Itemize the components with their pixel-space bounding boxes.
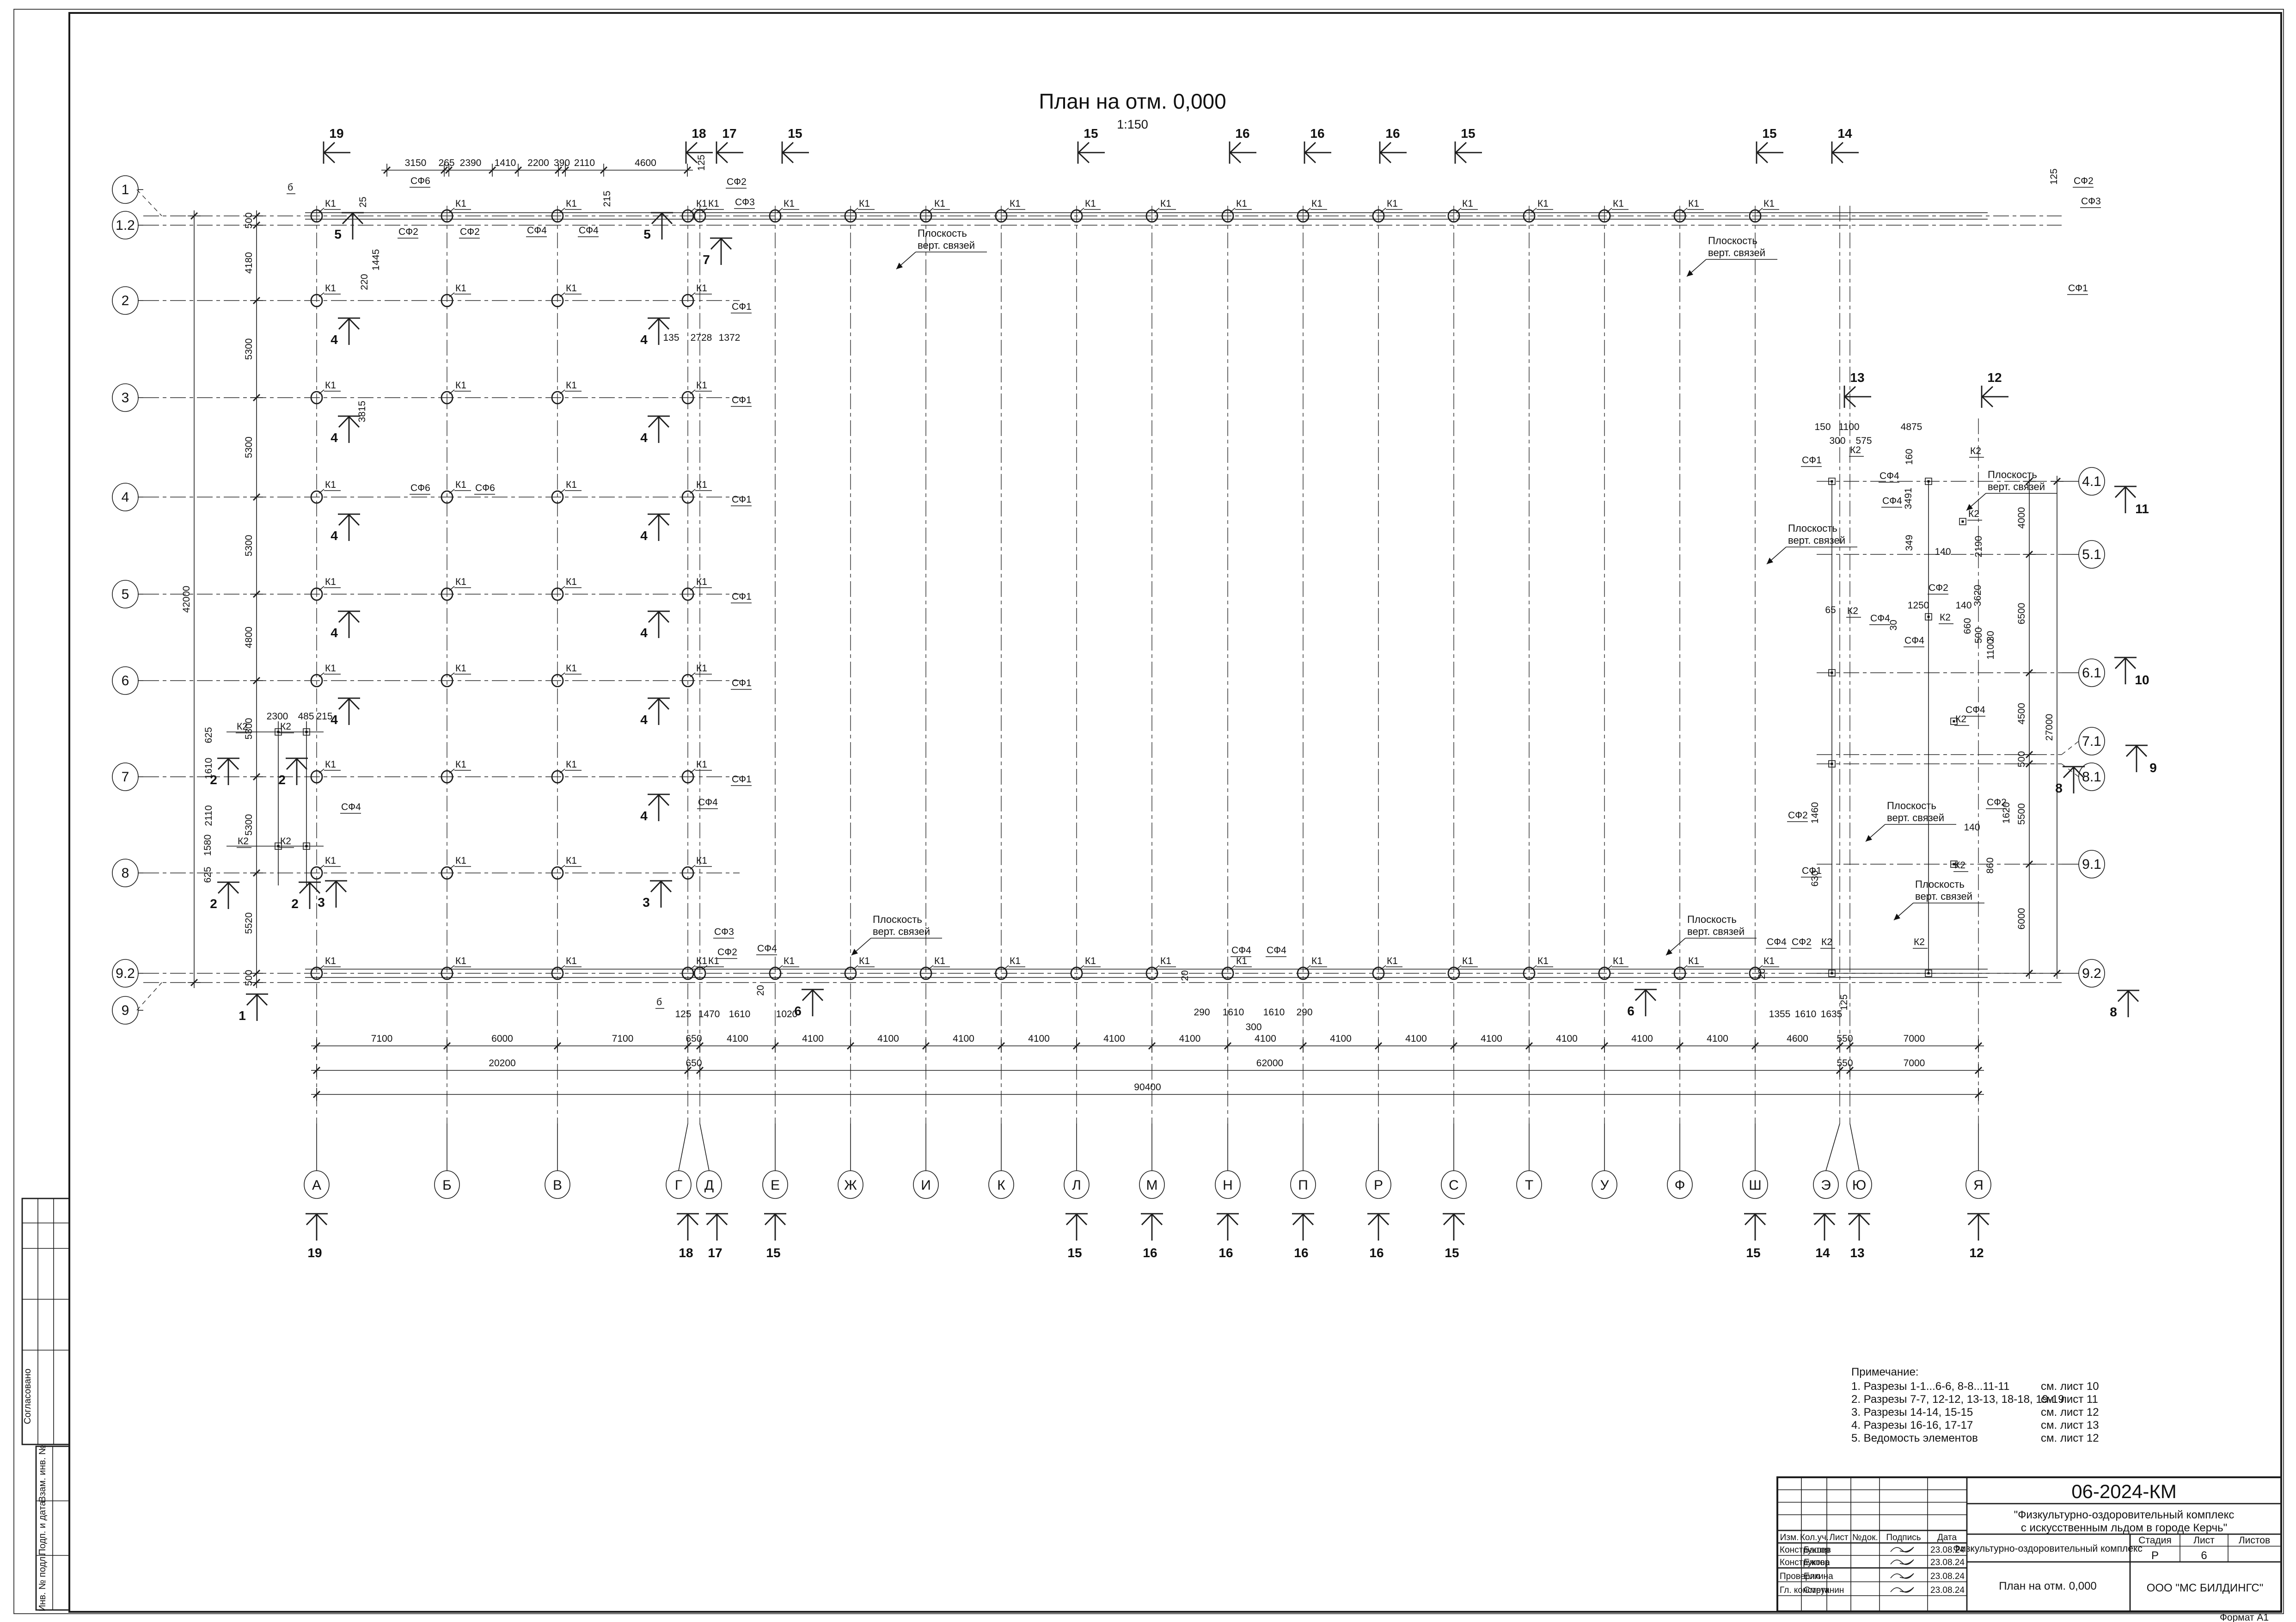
drawing-title-cell: План на отм. 0,000 — [1999, 1580, 2097, 1592]
title-block-signature-rows — [1891, 1547, 1914, 1592]
section-arrow — [1368, 1214, 1378, 1225]
local-dim: 30 — [1985, 631, 1996, 641]
section-arrow — [1066, 1214, 1077, 1225]
dim-value: 5300 — [244, 436, 254, 458]
column-mark-k2-core — [277, 845, 280, 848]
sheet-number: 6 — [2201, 1549, 2207, 1562]
note-item: 4. Разрезы 16-16, 17-17 — [1851, 1419, 1973, 1432]
section-arrow — [1077, 1214, 1087, 1225]
section-number: 16 — [1218, 1246, 1233, 1260]
dim-value: 5520 — [244, 912, 254, 934]
dim-value: 4100 — [727, 1033, 748, 1044]
plane-note: Плоскость — [918, 227, 967, 239]
section-arrow — [711, 239, 721, 249]
local-dim: 20 — [1180, 970, 1190, 981]
dim-value: 4100 — [1103, 1033, 1125, 1044]
plane-note: верт. связей — [1687, 926, 1745, 937]
axis-label: Н — [1223, 1178, 1233, 1193]
column-label-k1: К1 — [1311, 198, 1322, 209]
column-label-k1: К1 — [566, 283, 577, 294]
section-arrow — [1078, 142, 1089, 153]
local-dim: 1620 — [2001, 802, 2012, 824]
section-number: 4 — [640, 713, 648, 727]
column-label-k1: К1 — [1613, 198, 1624, 209]
section-number: 11 — [2135, 502, 2149, 516]
local-dim: 1250 — [1908, 600, 1929, 611]
axis-label: 1.2 — [116, 218, 135, 233]
axis-leader — [137, 190, 162, 216]
section-number: 3 — [318, 895, 325, 909]
section-arrow — [1982, 397, 1993, 407]
column-label-k1: К1 — [325, 663, 336, 674]
doc-number: 06-2024-КМ — [2071, 1481, 2177, 1502]
local-dim: 2190 — [1973, 536, 1984, 558]
axis-label: 9.1 — [2082, 857, 2101, 872]
plane-note: верт. связей — [1887, 812, 1944, 823]
section-arrow — [306, 1214, 317, 1225]
section-number: 12 — [1987, 370, 2002, 385]
section-number: 18 — [679, 1246, 693, 1260]
list-header: Лист — [2193, 1535, 2215, 1546]
local-dim: 1445 — [371, 249, 381, 271]
stamp-podp-data: Подп. и дата — [37, 1500, 48, 1555]
section-arrow — [2063, 767, 2074, 778]
column-label-k1: К1 — [455, 663, 466, 674]
section-number: 8 — [2055, 781, 2063, 795]
section-number: 4 — [640, 528, 648, 543]
section-number: 19 — [329, 126, 343, 141]
section-number: 4 — [640, 430, 648, 445]
signature — [1891, 1560, 1914, 1565]
element-label: СФ4 — [1231, 945, 1251, 956]
local-dim: 140 — [1964, 822, 1980, 833]
element-label: СФ4 — [1904, 635, 1924, 646]
dim-value: 4500 — [2016, 703, 2027, 725]
section-arrow — [662, 213, 672, 224]
element-label: СФ4 — [1880, 471, 1899, 481]
dim-value: 650 — [686, 1033, 702, 1044]
column-label-k1: К1 — [455, 855, 466, 866]
local-dim: 1460 — [1810, 802, 1820, 824]
element-label: СФ1 — [732, 395, 752, 405]
plan-drawing: АБВГДЕЖИКЛМНПРСТУФШЭЮЯ11.223456789.294.1… — [112, 126, 2157, 1595]
dim-value: 6000 — [491, 1033, 513, 1044]
section-number: 14 — [1837, 126, 1852, 141]
column-label-k1: К1 — [1462, 198, 1473, 209]
column-label-k1: К1 — [696, 283, 707, 294]
plane-note: верт. связей — [1708, 247, 1765, 258]
local-dim: 1580 — [202, 835, 213, 856]
column-mark-k2-core — [1928, 616, 1930, 618]
tb-date: 23.08.24 — [1930, 1585, 1965, 1595]
section-number: 9 — [2149, 761, 2157, 775]
plane-note: Плоскость — [1788, 522, 1837, 534]
section-number: 16 — [1369, 1246, 1384, 1260]
local-dim: 290 — [1194, 1007, 1210, 1018]
dim-value: 4000 — [2016, 507, 2027, 529]
section-arrow — [1635, 990, 1646, 1001]
dim-value: 500 — [244, 212, 254, 228]
leader-arrowhead — [896, 263, 903, 269]
section-number: 18 — [692, 126, 706, 141]
section-arrow — [1230, 142, 1241, 153]
axis-label: 9.2 — [2082, 966, 2101, 981]
leader-arrowhead — [1666, 949, 1672, 955]
local-dim: 25 — [358, 197, 368, 207]
local-dim: 125 — [2049, 168, 2059, 184]
section-arrow — [218, 883, 228, 893]
column-label-k1: К1 — [696, 759, 707, 770]
stamp-vzam-inv: Взам. инв. № — [37, 1445, 48, 1502]
section-arrow — [2126, 746, 2137, 756]
local-dim: 160 — [1904, 449, 1915, 465]
section-arrow — [765, 1214, 775, 1225]
section-arrow — [2125, 487, 2136, 498]
column-label-k1: К1 — [455, 956, 466, 966]
local-dim: 125 — [675, 1009, 691, 1020]
axis-label: 5.1 — [2082, 547, 2101, 562]
section-number: 4 — [640, 626, 648, 640]
element-label: СФ3 — [714, 927, 734, 937]
note-item: 3. Разрезы 14-14, 15-15 — [1851, 1406, 1973, 1419]
dim-value: 1410 — [495, 158, 516, 168]
column-label-k1: К1 — [696, 577, 707, 587]
section-number: 6 — [1627, 1004, 1635, 1018]
local-dim: 1470 — [698, 1009, 720, 1020]
element-label: СФ3 — [2081, 196, 2101, 207]
element-label: СФ4 — [341, 802, 361, 812]
axis-label: Т — [1525, 1178, 1533, 1193]
axis-label: 1 — [122, 182, 129, 197]
element-label: СФ2 — [2074, 176, 2094, 186]
column-label-k1: К1 — [1085, 198, 1096, 209]
axis-label: П — [1298, 1178, 1308, 1193]
element-label: К2 — [1821, 937, 1832, 947]
section-arrow — [1152, 1214, 1162, 1225]
local-dim: 1355 — [1769, 1009, 1791, 1020]
local-dim: 1610 — [1795, 1009, 1817, 1020]
section-number: 15 — [1746, 1246, 1760, 1260]
section-arrow — [688, 1214, 698, 1225]
dim-value: 4100 — [953, 1033, 974, 1044]
column-label-k1: К1 — [859, 956, 870, 966]
section-arrow — [300, 883, 310, 893]
axis-leader — [137, 983, 162, 1010]
element-label: СФ1 — [732, 774, 752, 785]
local-dim: 4875 — [1901, 422, 1923, 432]
local-dim: 660 — [1962, 618, 1973, 634]
column-label-k1: К1 — [859, 198, 870, 209]
column-label-k1: К1 — [1613, 956, 1624, 966]
axis-label: 7.1 — [2082, 734, 2101, 749]
element-label: СФ2 — [460, 227, 480, 237]
axis-label: Ж — [844, 1178, 857, 1193]
section-arrow — [1755, 1214, 1765, 1225]
dim-value: 550 — [1837, 1058, 1853, 1069]
tb-date: 23.08.24 — [1930, 1558, 1965, 1567]
dim-value: 42000 — [181, 586, 192, 613]
column-label-k1: К1 — [696, 380, 707, 391]
axis-label: Ш — [1749, 1178, 1762, 1193]
column-mark-k2-core — [1831, 972, 1833, 975]
column-label-k1: К1 — [566, 759, 577, 770]
element-label: СФ3 — [735, 197, 755, 208]
drawing-sheet: План на отм. 0,000 1:150 АБВГДЕЖИКЛМНПРС… — [0, 0, 2296, 1622]
section-number: 4 — [331, 528, 338, 543]
section-arrow — [1757, 142, 1768, 153]
column-label-k1: К1 — [455, 380, 466, 391]
section-arrow — [775, 1214, 785, 1225]
element-label: СФ2 — [398, 227, 418, 237]
section-arrow — [678, 1214, 688, 1225]
section-arrow — [1303, 1214, 1313, 1225]
plane-note: верт. связей — [1788, 535, 1845, 546]
section-arrow — [228, 883, 239, 893]
local-dim: 65 — [1825, 605, 1836, 615]
title-block: 06-2024-КМ "Физкультурно-оздоровительный… — [1777, 1477, 2281, 1611]
dim-value: 4100 — [1631, 1033, 1653, 1044]
dim-value: 7100 — [612, 1033, 634, 1044]
section-arrow — [659, 515, 669, 525]
axis-label: Я — [1973, 1178, 1984, 1193]
column-label-k1: К1 — [1160, 198, 1171, 209]
local-dim: 1610 — [203, 758, 214, 780]
section-arrow — [1454, 1214, 1464, 1225]
section-number: 4 — [331, 332, 338, 347]
section-number: 7 — [703, 252, 710, 267]
local-dim: 1610 — [1223, 1007, 1244, 1018]
section-number: 16 — [1385, 126, 1400, 141]
section-arrow — [1380, 142, 1391, 153]
axis-label: Д — [704, 1178, 714, 1193]
local-dim: 349 — [1904, 535, 1915, 551]
element-label: СФ2 — [1929, 583, 1948, 593]
section-arrow — [339, 417, 349, 427]
column-mark-k2-core — [277, 731, 280, 733]
section-number: 15 — [1084, 126, 1098, 141]
section-number: 8 — [2110, 1005, 2117, 1019]
section-number: 2 — [210, 897, 217, 911]
dim-value: 7000 — [1904, 1033, 1925, 1044]
dim-value: 2200 — [527, 158, 549, 168]
axis-label: 5 — [122, 587, 129, 602]
dim-value: 4100 — [802, 1033, 824, 1044]
section-arrow — [339, 699, 349, 709]
axis-label: Е — [771, 1178, 780, 1193]
local-dim: 20 — [1757, 968, 1767, 979]
section-arrow — [287, 759, 297, 769]
local-dim: 125 — [696, 154, 707, 171]
section-number: 4 — [640, 332, 648, 347]
section-number: 16 — [1310, 126, 1324, 141]
axis-leader — [679, 1124, 688, 1171]
plane-note: верт. связей — [1988, 481, 2045, 492]
section-arrow — [649, 612, 659, 622]
tb-name: Сметанин — [1804, 1585, 1844, 1595]
section-number: 5 — [643, 227, 651, 241]
drawing-scale: 1:150 — [1117, 117, 1148, 131]
local-dim: 3491 — [1903, 488, 1914, 510]
section-arrow — [317, 1214, 327, 1225]
column-label-k1: К1 — [566, 380, 577, 391]
axis-leader — [700, 1124, 709, 1171]
dim-value: 7000 — [1904, 1058, 1925, 1069]
section-number: 12 — [1969, 1246, 1984, 1260]
axis-label: С — [1449, 1178, 1459, 1193]
section-number: 15 — [1445, 1246, 1459, 1260]
section-number: 4 — [640, 809, 648, 823]
section-number: 1 — [239, 1008, 246, 1023]
side-stamp: Согласовано Взам. инв. № Подп. и дата Ин… — [22, 1198, 69, 1611]
element-label: СФ2 — [1788, 810, 1808, 821]
element-label: СФ4 — [579, 225, 599, 236]
column-label-k1: К1 — [708, 198, 719, 209]
section-arrow — [717, 142, 728, 153]
dim-value: 500 — [244, 970, 254, 986]
element-label: К2 — [1850, 445, 1861, 455]
column-mark-k2-core — [306, 731, 308, 733]
local-dim: 30 — [1888, 620, 1899, 630]
column-label-k1: К1 — [566, 956, 577, 966]
column-label-k1: К1 — [696, 855, 707, 866]
axis-label: Ю — [1852, 1178, 1866, 1193]
section-arrow — [336, 881, 346, 892]
plane-note: Плоскость — [873, 914, 922, 925]
element-label: К2 — [1954, 860, 1965, 871]
column-label-k1: К1 — [784, 956, 795, 966]
local-dim: 860 — [1985, 857, 1996, 873]
dim-value: 4100 — [1330, 1033, 1352, 1044]
section-arrow — [1982, 387, 1993, 397]
frame-inner — [69, 13, 2281, 1612]
element-label: СФ1 — [732, 591, 752, 602]
dim-value: 6000 — [2016, 908, 2027, 930]
dim-value: 62000 — [1256, 1058, 1283, 1069]
local-dim: 1610 — [1263, 1007, 1285, 1018]
column-mark-k2-core — [1928, 480, 1930, 483]
project-name-line1: "Физкультурно-оздоровительный комплекс — [2014, 1509, 2235, 1521]
axis-label: 6.1 — [2082, 665, 2101, 681]
local-dim: 625 — [203, 727, 214, 743]
section-arrow — [659, 699, 669, 709]
local-dim: 3815 — [357, 401, 367, 423]
column-label-k1: К1 — [1085, 956, 1096, 966]
column-mark-k2-core — [1928, 972, 1930, 975]
column-label-k1: К1 — [1537, 956, 1549, 966]
section-number: 19 — [307, 1246, 322, 1260]
section-arrow — [228, 759, 239, 769]
element-label: К2 — [280, 721, 291, 732]
section-arrow — [686, 142, 697, 153]
section-arrow — [349, 699, 359, 709]
element-label: СФ4 — [757, 943, 777, 954]
local-dim: 290 — [1296, 1007, 1312, 1018]
element-label: СФ4 — [698, 797, 718, 808]
dim-value: 390 — [554, 158, 570, 168]
section-arrow — [686, 153, 697, 163]
dim-value: 4100 — [1255, 1033, 1276, 1044]
section-arrow — [2115, 487, 2125, 498]
local-dim: 2110 — [203, 805, 214, 826]
element-label: СФ2 — [1792, 937, 1812, 947]
section-arrow — [649, 319, 659, 329]
axis-label: У — [1600, 1178, 1609, 1193]
section-arrow — [1757, 153, 1768, 163]
section-arrow — [1849, 1214, 1859, 1225]
axis-label: 9 — [122, 1003, 129, 1018]
tb-date: 23.08.24 — [1930, 1572, 1965, 1581]
section-arrow — [649, 795, 659, 805]
leader-arrowhead — [1894, 914, 1900, 920]
column-label-k1: К1 — [325, 759, 336, 770]
column-label-k1: К1 — [566, 198, 577, 209]
local-dim: 1020 — [776, 1009, 798, 1020]
section-arrow — [649, 515, 659, 525]
section-number: 16 — [1143, 1246, 1157, 1260]
column-label-k1: К1 — [325, 198, 336, 209]
element-label: СФ4 — [1882, 496, 1902, 506]
column-label-k1: К1 — [1160, 956, 1171, 966]
leader-arrowhead — [1687, 270, 1693, 276]
section-number: 4 — [331, 430, 338, 445]
note-ref: см. лист 12 — [2041, 1432, 2099, 1444]
section-arrow — [1078, 153, 1089, 163]
section-number: 3 — [643, 895, 650, 909]
column-label-k1: К1 — [325, 577, 336, 587]
element-label: К2 — [1847, 606, 1858, 616]
object-name: Физкультурно-оздоровительный комплекс — [1953, 1543, 2143, 1554]
section-arrow — [343, 213, 353, 224]
local-dim: 20 — [755, 985, 766, 995]
column-label-k1: К1 — [566, 663, 577, 674]
section-arrow — [349, 319, 359, 329]
dim-value: 550 — [1837, 1033, 1853, 1044]
column-label-k1: К1 — [1010, 198, 1021, 209]
section-arrow — [324, 142, 335, 153]
column-mark-k2-core — [1831, 763, 1833, 765]
section-arrow — [1832, 142, 1843, 153]
column-label-k1: К1 — [455, 283, 466, 294]
section-arrow — [339, 612, 349, 622]
section-number: 14 — [1815, 1246, 1830, 1260]
column-label-k1: К1 — [455, 479, 466, 490]
element-label: К2 — [1914, 937, 1925, 947]
section-number: 16 — [1235, 126, 1249, 141]
column-label-k1: К1 — [1537, 198, 1549, 209]
section-arrow — [349, 612, 359, 622]
section-arrow — [783, 153, 793, 163]
company-name: ООО "МС БИЛДИНГС" — [2147, 1582, 2264, 1594]
column-label-k1: К1 — [1763, 956, 1775, 966]
axis-label: 6 — [122, 673, 129, 688]
local-dim: 300 — [1245, 1022, 1261, 1032]
column-label-k1: К1 — [1387, 956, 1398, 966]
section-arrow — [659, 612, 669, 622]
section-arrow — [1825, 1214, 1835, 1225]
column-label-k1: К1 — [934, 956, 945, 966]
section-arrow — [1859, 1214, 1869, 1225]
section-arrow — [783, 142, 793, 153]
section-number: 10 — [2135, 673, 2149, 687]
element-label: СФ1 — [732, 678, 752, 688]
element-label: СФ1 — [2068, 283, 2088, 294]
section-arrow — [1646, 990, 1656, 1001]
col-data: Дата — [1937, 1533, 1957, 1542]
section-arrow — [802, 990, 813, 1001]
section-number: 13 — [1850, 370, 1864, 385]
element-label: СФ4 — [1767, 937, 1787, 947]
column-label-k1: К1 — [455, 759, 466, 770]
